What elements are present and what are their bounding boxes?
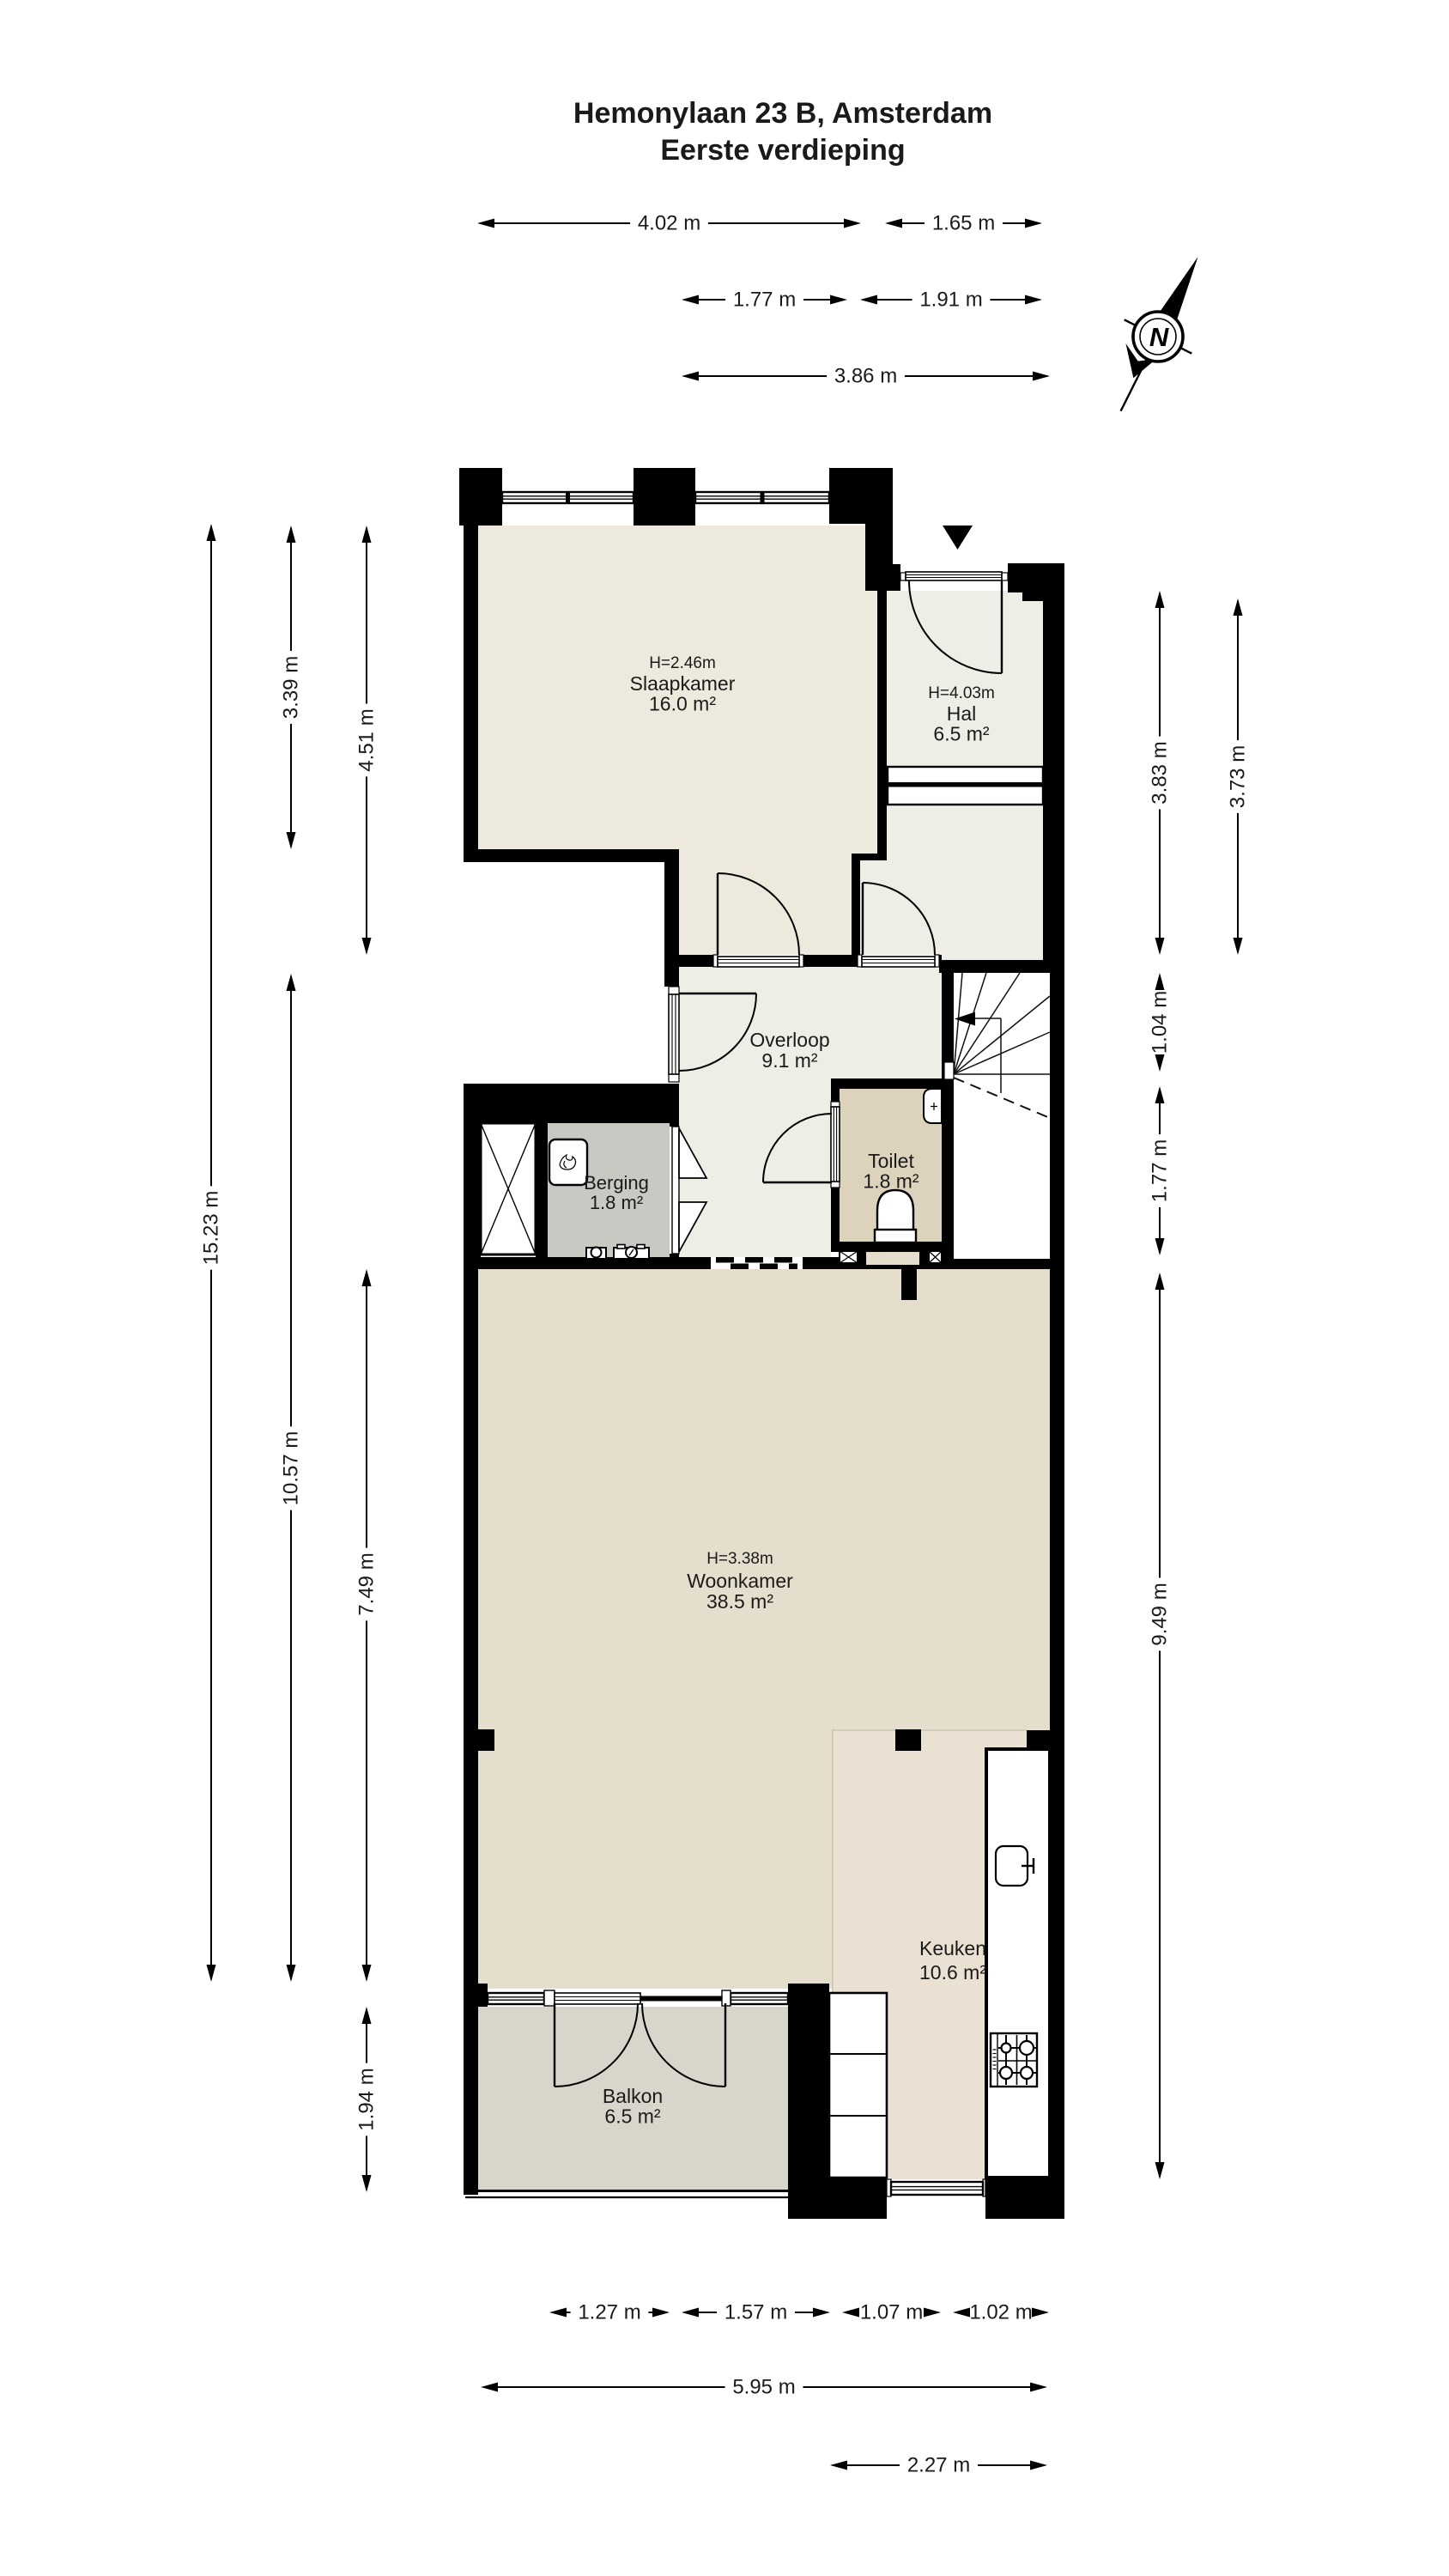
svg-text:1.27 m: 1.27 m: [578, 2301, 640, 2324]
svg-text:9.1 m²: 9.1 m²: [761, 1049, 818, 1072]
svg-text:3.83 m: 3.83 m: [1149, 741, 1172, 804]
svg-text:1.02 m: 1.02 m: [969, 2301, 1032, 2324]
svg-text:1.94 m: 1.94 m: [355, 2068, 379, 2130]
svg-text:Woonkamer: Woonkamer: [687, 1570, 793, 1592]
svg-text:3.86 m: 3.86 m: [834, 365, 897, 388]
svg-text:Balkon: Balkon: [603, 2085, 663, 2107]
svg-text:1.77 m: 1.77 m: [1149, 1139, 1172, 1202]
svg-text:4.02 m: 4.02 m: [638, 212, 700, 235]
svg-text:1.8 m²: 1.8 m²: [863, 1170, 919, 1193]
svg-text:1.07 m: 1.07 m: [860, 2301, 923, 2324]
svg-text:1.91 m: 1.91 m: [919, 289, 982, 312]
svg-text:1.8 m²: 1.8 m²: [590, 1192, 643, 1213]
svg-text:Slaapkamer: Slaapkamer: [630, 672, 736, 695]
svg-text:1.65 m: 1.65 m: [932, 212, 995, 235]
svg-text:3.39 m: 3.39 m: [280, 656, 303, 719]
svg-text:Hal: Hal: [947, 702, 977, 725]
svg-text:2.27 m: 2.27 m: [907, 2454, 970, 2477]
svg-text:1.57 m: 1.57 m: [724, 2301, 787, 2324]
svg-text:1.77 m: 1.77 m: [733, 289, 796, 312]
svg-text:Toilet: Toilet: [868, 1150, 914, 1172]
svg-text:N: N: [1149, 322, 1169, 352]
svg-text:H=3.38m: H=3.38m: [706, 1550, 773, 1568]
svg-text:Hemonylaan 23 B, Amsterdam: Hemonylaan 23 B, Amsterdam: [573, 97, 992, 130]
svg-text:Overloop: Overloop: [749, 1029, 829, 1051]
svg-text:16.0 m²: 16.0 m²: [649, 693, 716, 715]
svg-text:9.49 m: 9.49 m: [1149, 1583, 1172, 1645]
svg-text:6.5 m²: 6.5 m²: [604, 2105, 661, 2128]
svg-text:3.73 m: 3.73 m: [1227, 745, 1250, 808]
svg-text:Eerste verdieping: Eerste verdieping: [660, 134, 905, 167]
svg-text:38.5 m²: 38.5 m²: [706, 1590, 773, 1613]
svg-text:Keuken: Keuken: [919, 1937, 986, 1959]
svg-text:Berging: Berging: [584, 1172, 649, 1194]
svg-text:H=2.46m: H=2.46m: [649, 654, 716, 672]
svg-text:5.95 m: 5.95 m: [732, 2376, 795, 2399]
svg-text:7.49 m: 7.49 m: [355, 1552, 379, 1615]
svg-text:15.23 m: 15.23 m: [200, 1191, 223, 1266]
svg-text:H=4.03m: H=4.03m: [928, 684, 995, 702]
svg-text:10.57 m: 10.57 m: [280, 1431, 303, 1506]
svg-text:1.04 m: 1.04 m: [1149, 991, 1172, 1054]
svg-text:4.51 m: 4.51 m: [355, 708, 379, 771]
svg-text:10.6 m²: 10.6 m²: [919, 1961, 986, 1984]
svg-text:6.5 m²: 6.5 m²: [933, 723, 990, 745]
